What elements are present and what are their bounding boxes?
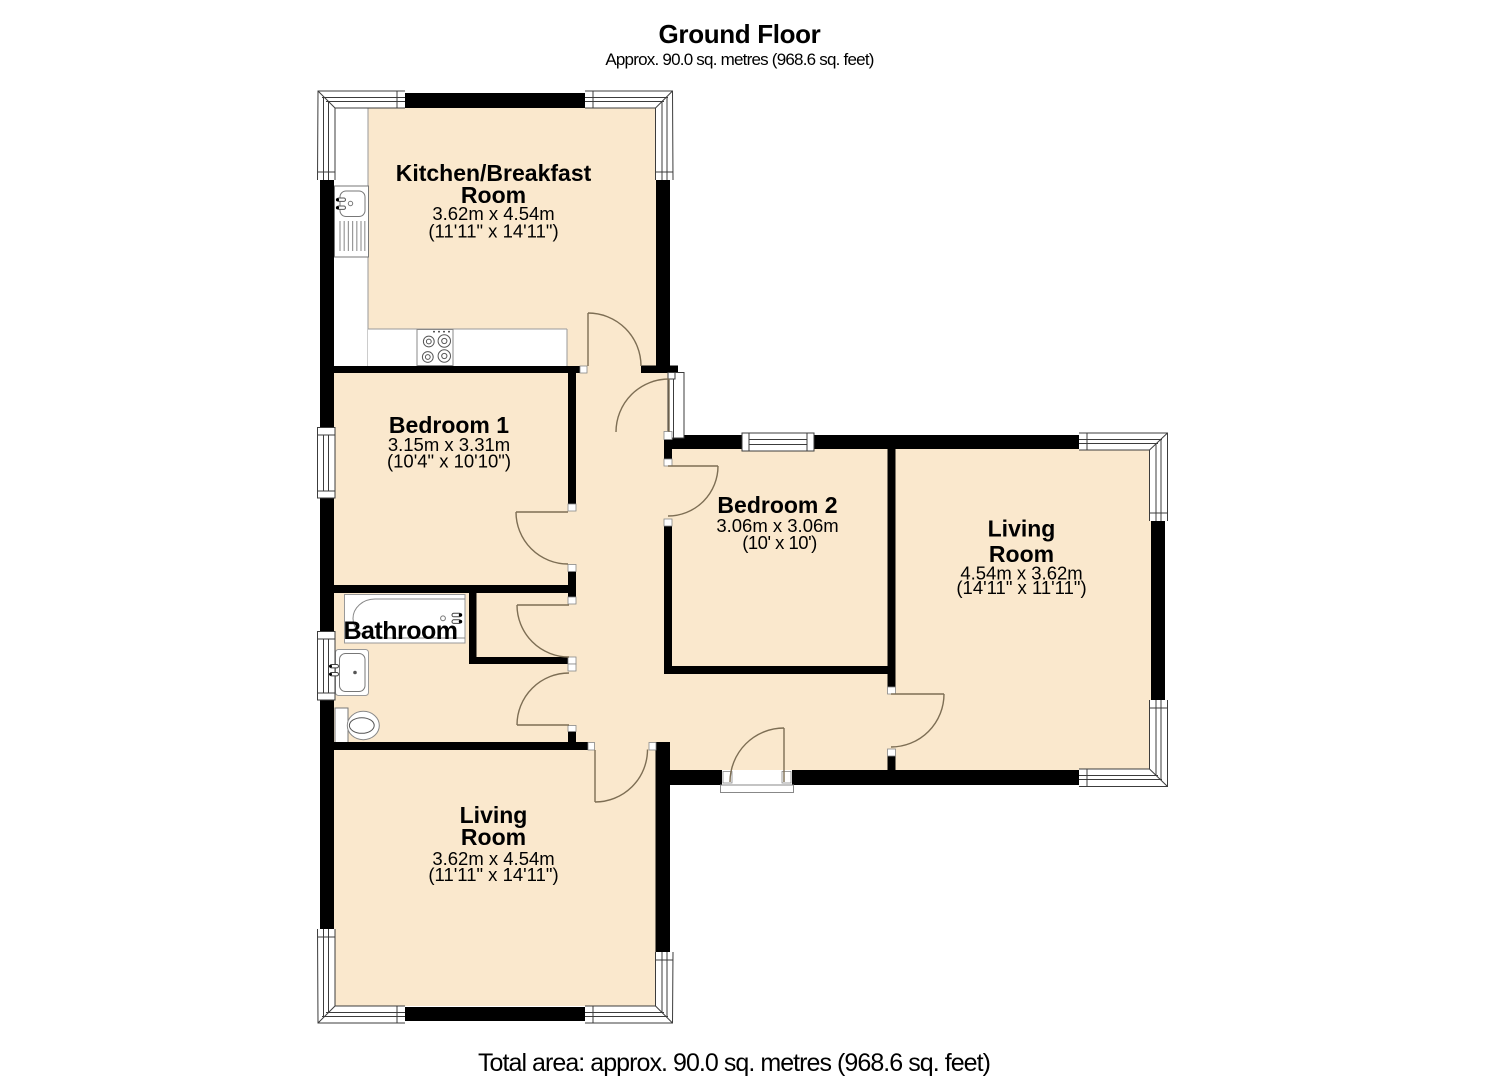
- svg-text:(11'11" x 14'11"): (11'11" x 14'11"): [428, 221, 558, 242]
- svg-text:Approx. 90.0 sq. metres (968.6: Approx. 90.0 sq. metres (968.6 sq. feet): [605, 50, 873, 69]
- svg-text:(10' x 10'): (10' x 10'): [742, 532, 817, 553]
- svg-text:(11'11" x 14'11"): (11'11" x 14'11"): [428, 864, 558, 885]
- svg-text:Ground Floor: Ground Floor: [659, 19, 821, 49]
- svg-text:Total area: approx. 90.0 sq. m: Total area: approx. 90.0 sq. metres (968…: [478, 1049, 990, 1077]
- svg-text:Room: Room: [461, 824, 526, 850]
- svg-text:(14'11" x 11'11"): (14'11" x 11'11"): [956, 577, 1086, 598]
- svg-text:Bathroom: Bathroom: [343, 617, 457, 645]
- svg-text:Living: Living: [988, 516, 1056, 542]
- svg-text:(10'4" x 10'10"): (10'4" x 10'10"): [387, 451, 511, 472]
